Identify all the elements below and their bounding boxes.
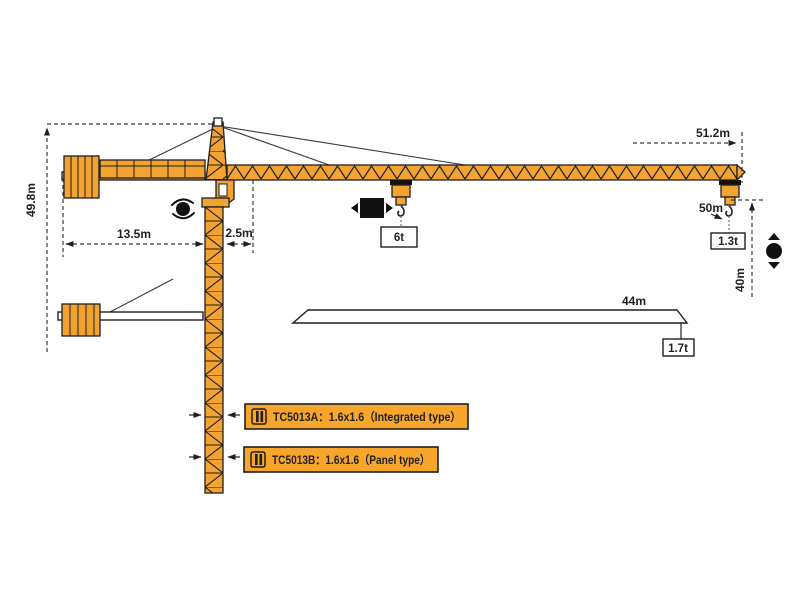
- tip-trolley-frame: [719, 180, 741, 185]
- crane-diagram-canvas: 49.8m 1.3t: [0, 0, 800, 600]
- spec-box-tc5013a: TC5013A：1.6x1.6（Integrated type）: [245, 404, 468, 429]
- cab-window: [219, 184, 227, 196]
- trolley-travel-icon: [351, 198, 393, 218]
- tip-hook: [726, 206, 732, 216]
- counterjib-pendant: [143, 126, 219, 163]
- max-load-value: 6t: [394, 232, 404, 244]
- crane-diagram: 49.8m 1.3t: [0, 0, 800, 600]
- slewing-platform: [202, 198, 229, 207]
- counterweight-blocks: [64, 156, 99, 198]
- offset-label: 2.5m: [225, 226, 252, 240]
- short-jib-config: 44m 1.7t: [58, 279, 694, 356]
- counterjib-length-label: 13.5m: [117, 227, 151, 241]
- spec-box-a-text: TC5013A：1.6x1.6（Integrated type）: [273, 410, 461, 424]
- apex-cap: [214, 118, 222, 126]
- spec-box-b-text: TC5013B：1.6x1.6（Panel type）: [272, 453, 430, 467]
- hoist-dot: [766, 243, 782, 259]
- short-jib-length-label: 44m: [622, 294, 646, 308]
- trolley-left-arrow: [351, 203, 358, 213]
- slewing-dot: [176, 202, 190, 216]
- trolley-square: [360, 198, 384, 218]
- max-load-box: 6t: [381, 227, 417, 247]
- counter-jib: [62, 156, 205, 198]
- section-icon-bar1-b: [255, 454, 258, 465]
- tip-hook-block: [725, 197, 735, 205]
- mid-hook: [398, 206, 404, 216]
- trolley-radius-label: 50m: [699, 201, 723, 215]
- hook-height-label: 40m: [733, 268, 747, 292]
- mid-trolley-hook: [390, 180, 412, 227]
- section-icon-bar2-b: [260, 454, 263, 465]
- section-icon-bar2-a: [261, 411, 264, 422]
- spec-box-tc5013b: TC5013B：1.6x1.6（Panel type）: [244, 447, 438, 472]
- tip-load-box: 1.3t: [711, 233, 745, 249]
- tip-load-value: 1.3t: [718, 236, 738, 248]
- mid-hook-block: [396, 197, 406, 205]
- mid-trolley-body: [392, 185, 410, 197]
- short-tip-load-value: 1.7t: [668, 343, 688, 355]
- section-icon-bar1-a: [256, 411, 259, 422]
- hoist-down-arrow: [768, 262, 780, 269]
- slewing-icon: [172, 199, 194, 218]
- jib-pendant-1: [219, 126, 332, 166]
- dimension-trolley-radius: 50m: [699, 201, 723, 219]
- jib-tip-cap: [737, 165, 745, 180]
- short-jib-outline: [293, 310, 687, 323]
- mid-trolley-frame: [390, 180, 412, 185]
- jib-lattice: [227, 165, 737, 180]
- total-height-label: 49.8m: [24, 183, 38, 217]
- tower-mast: [205, 207, 223, 493]
- counterjib-platform: [100, 160, 205, 178]
- max-radius-label: 51.2m: [696, 126, 730, 140]
- trolley-right-arrow: [386, 203, 393, 213]
- short-config-pendant: [110, 279, 173, 312]
- tower-head: [206, 118, 227, 180]
- main-jib: [227, 165, 745, 180]
- hoist-icon: [766, 233, 782, 269]
- jib-pendant-2: [219, 126, 490, 169]
- hoist-up-arrow: [768, 233, 780, 240]
- tip-trolley-body: [721, 185, 739, 197]
